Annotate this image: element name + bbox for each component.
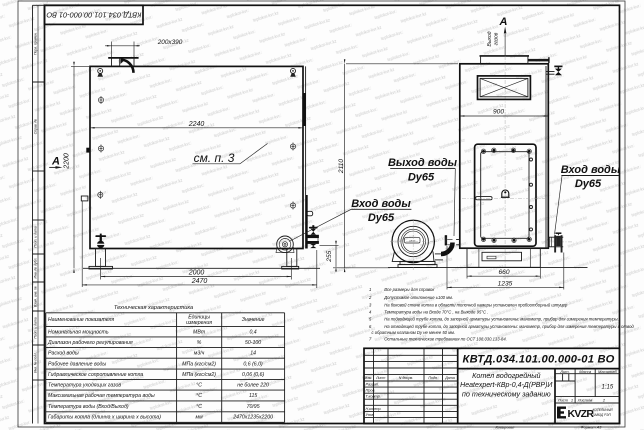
svg-text:Значение: Значение [242,317,265,323]
svg-text:Перв. примен.: Перв. примен. [33,32,37,55]
svg-text:Инв. № дубл.: Инв. № дубл. [33,258,37,279]
svg-text:14: 14 [250,350,256,356]
svg-text:КВТД.034.101.00.000-01 ВО: КВТД.034.101.00.000-01 ВО [462,354,614,366]
svg-text:Подп. и дата: Подп. и дата [33,226,37,247]
svg-text:KVZR: KVZR [568,408,595,420]
svg-text:м3/ч: м3/ч [194,350,205,356]
svg-text:Габариты котла (длинна х ширин: Габариты котла (длинна х ширина х высота… [48,415,161,421]
svg-text:Копировал: Копировал [496,426,516,430]
svg-text:2110: 2110 [338,159,345,175]
svg-text:115: 115 [249,393,257,399]
svg-text:КВТД.034.101.00.000-01 ВО: КВТД.034.101.00.000-01 ВО [46,10,141,19]
svg-text:Масса: Масса [579,369,592,374]
svg-text:с обратным клапаном Dу не мен: с обратным клапаном Dу не менее 50 мм. [372,330,456,335]
svg-text:КОТЕЛЬНЫЙ: КОТЕЛЬНЫЙ [593,408,614,412]
svg-text:Гидравлическое сопротивление к: Гидравлическое сопротивление котла [48,372,143,378]
svg-text:900: 900 [493,109,504,116]
svg-text:2240: 2240 [188,121,205,128]
svg-text:На подводящей трубе котла, до: На подводящей трубе котла, до запорной а… [384,317,619,322]
svg-text:0,4: 0,4 [249,329,256,335]
svg-text:Расход воды: Расход воды [48,350,79,356]
svg-text:Справ. №: Справ. № [33,118,37,134]
svg-text:Утв.: Утв. [366,413,375,417]
svg-text:не более 220: не более 220 [237,382,269,388]
svg-text:мм: мм [196,415,204,421]
svg-text:°С: °С [196,382,202,388]
svg-text:Н.контр.: Н.контр. [366,407,382,411]
svg-text:Т.контр.: Т.контр. [366,395,381,399]
svg-text:Температура уходящих газов: Температура уходящих газов [48,382,121,388]
svg-text:Dy65: Dy65 [575,178,602,190]
svg-text:255: 255 [326,250,333,262]
svg-text:На отводящей трубе котла, до з: На отводящей трубе котла, до запорной ар… [384,324,634,329]
svg-text:%: % [197,340,202,346]
svg-text:Номинальная мощность: Номинальная мощность [48,329,109,335]
svg-text:Техническая характеристика: Техническая характеристика [114,305,193,311]
svg-text:200х390: 200х390 [157,39,183,46]
svg-text:70/95: 70/95 [247,404,260,410]
svg-text:Подп. и дата: Подп. и дата [33,317,37,338]
svg-text:Допустимое отклонение ±100 мм: Допустимое отклонение ±100 мм. [383,295,453,300]
svg-text:N докум.: N докум. [399,376,414,380]
svg-text:Листов: Листов [577,397,593,402]
svg-text:1: 1 [571,397,573,402]
svg-text:Лист: Лист [557,397,569,402]
svg-text:Дата: Дата [444,376,454,380]
svg-text:Лит.: Лит. [559,369,569,374]
svg-text:2000: 2000 [188,270,205,277]
svg-text:МВт: МВт [193,329,206,335]
svg-text:см. п. 3: см. п. 3 [194,151,235,165]
svg-text:На боковой стене котла в облас: На боковой стене котла в области топочно… [384,303,568,308]
svg-text:ЗАВОД РЭП: ЗАВОД РЭП [593,413,612,417]
svg-text:°С: °С [196,404,202,410]
svg-text:2470х1235х2200: 2470х1235х2200 [232,415,273,421]
svg-text:Остальные технические требован: Остальные технические требования по ОСТ … [384,337,507,342]
svg-text:Подп.: Подп. [428,376,438,380]
svg-text:Dy65: Dy65 [408,172,435,184]
svg-text:Максимальная рабочая температу: Максимальная рабочая температура воды [48,393,155,399]
svg-text:Лист: Лист [375,376,385,380]
svg-text:Взам. инв. №: Взам. инв. № [33,286,37,307]
svg-text:Dy65: Dy65 [368,212,395,224]
svg-text:Выход: Выход [487,31,493,46]
svg-text:Вход воды: Вход воды [351,198,411,210]
svg-text:°С: °С [196,393,202,399]
svg-text:А: А [51,156,60,168]
svg-text:Heatexpert-КВр-0,4-Д(РВР)И: Heatexpert-КВр-0,4-Д(РВР)И [460,382,553,389]
svg-text:Разраб.: Разраб. [366,383,380,387]
svg-text:МПа (кгс/см2): МПа (кгс/см2) [182,361,216,367]
svg-text:1235: 1235 [498,280,513,287]
svg-text:А: А [499,16,508,28]
svg-text:Температура воды (Вход/Выход): Температура воды (Вход/Выход) [48,404,129,410]
svg-text:0,6 (6,0): 0,6 (6,0) [243,361,263,367]
svg-text:Вход воды: Вход воды [561,164,621,176]
svg-text:Все размеры для справок: Все размеры для справок [384,287,435,292]
svg-text:измерения: измерения [186,320,212,326]
svg-text:Пров.: Пров. [366,389,376,393]
svg-text:Инв. № подл.: Инв. № подл. [33,352,37,373]
svg-text:Диапазон рабочего регулировани: Диапазон рабочего регулирования [47,340,133,346]
svg-text:Наименование показателя: Наименование показателя [48,317,114,323]
svg-text:1: 1 [369,287,371,292]
svg-text:Масштаб: Масштаб [598,369,617,374]
svg-text:2470: 2470 [191,278,208,285]
svg-text:МПа (кгс/см2): МПа (кгс/см2) [182,372,216,378]
svg-text:Котел водогрейный: Котел водогрейный [472,371,540,380]
svg-text:660: 660 [498,269,509,276]
svg-text:2200: 2200 [63,153,70,170]
svg-text:50-100: 50-100 [245,340,261,346]
svg-text:1:15: 1:15 [602,384,614,390]
svg-text:Температура воды на Входе 70°: Температура воды на Входе 70°С , на Выхо… [384,310,488,315]
svg-text:Изм.: Изм. [365,376,373,380]
svg-text:газов: газов [494,32,500,45]
svg-text:Рабочее давление воды: Рабочее давление воды [48,361,106,367]
svg-text:0,06 (0,6): 0,06 (0,6) [242,372,264,378]
svg-text:по техническому заданию: по техническому заданию [462,390,551,399]
svg-text:Формат А3: Формат А3 [581,426,603,430]
svg-text:Выход воды: Выход воды [388,157,458,169]
